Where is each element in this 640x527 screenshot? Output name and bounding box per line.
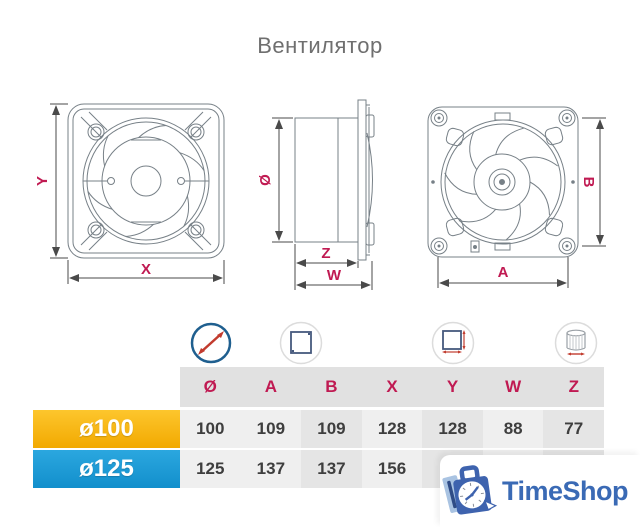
front-view-drawing: [68, 104, 224, 258]
dim-label-x: X: [141, 261, 151, 278]
row-label-d125: ø125: [33, 450, 180, 488]
cell-d100-b: 109: [301, 410, 362, 448]
dim-label-diameter: Ø: [257, 174, 274, 186]
cell-d125-b: 137: [301, 450, 362, 488]
cell-d125-a: 137: [241, 450, 302, 488]
front-view-dimensions: [50, 104, 224, 284]
cell-d125-x: 156: [362, 450, 423, 488]
cell-d100-z: 77: [543, 410, 604, 448]
back-view-dimensions: [438, 118, 606, 288]
column-header-w: W: [483, 367, 544, 407]
column-header-z: Z: [543, 367, 604, 407]
column-header-b: B: [301, 367, 362, 407]
table-row: ø100 100 109 109 128 128 88 77: [33, 410, 604, 448]
cell-d100-a: 109: [241, 410, 302, 448]
column-header-y: Y: [422, 367, 483, 407]
product-spec-sheet: Вентилятор: [0, 0, 640, 527]
side-view-drawing: [295, 100, 374, 260]
cell-d100-x: 128: [362, 410, 423, 448]
cell-d100-w: 88: [483, 410, 544, 448]
cell-d125-diameter: 125: [180, 450, 241, 488]
timeshop-brand-text: TimeShop: [502, 476, 628, 507]
dim-label-b: B: [580, 177, 597, 188]
panel-size-icon: [279, 321, 323, 365]
dim-label-a: A: [498, 264, 509, 281]
column-header-a: A: [241, 367, 302, 407]
fan-technical-drawings: Y X Ø Z W: [0, 85, 640, 300]
dim-label-z: Z: [321, 245, 330, 262]
diameter-icon: [189, 321, 233, 365]
timeshop-watermark[interactable]: TimeShop: [440, 455, 640, 527]
table-header-row: Ø A B X Y W Z: [180, 367, 604, 407]
dim-label-w: W: [327, 267, 342, 284]
column-header-x: X: [362, 367, 423, 407]
cell-d100-y: 128: [422, 410, 483, 448]
page-title: Вентилятор: [0, 33, 640, 59]
dim-label-y: Y: [34, 176, 51, 186]
side-view-dimensions: [272, 118, 372, 290]
cell-d100-diameter: 100: [180, 410, 241, 448]
row-values-d100: 100 109 109 128 128 88 77: [180, 410, 604, 448]
timeshop-bag-clock-icon: [440, 459, 500, 523]
back-view-drawing: [428, 107, 578, 257]
duct-depth-icon: [554, 321, 598, 365]
column-header-diameter: Ø: [180, 367, 241, 407]
mounting-size-icon: [431, 321, 475, 365]
row-label-d100: ø100: [33, 410, 180, 448]
